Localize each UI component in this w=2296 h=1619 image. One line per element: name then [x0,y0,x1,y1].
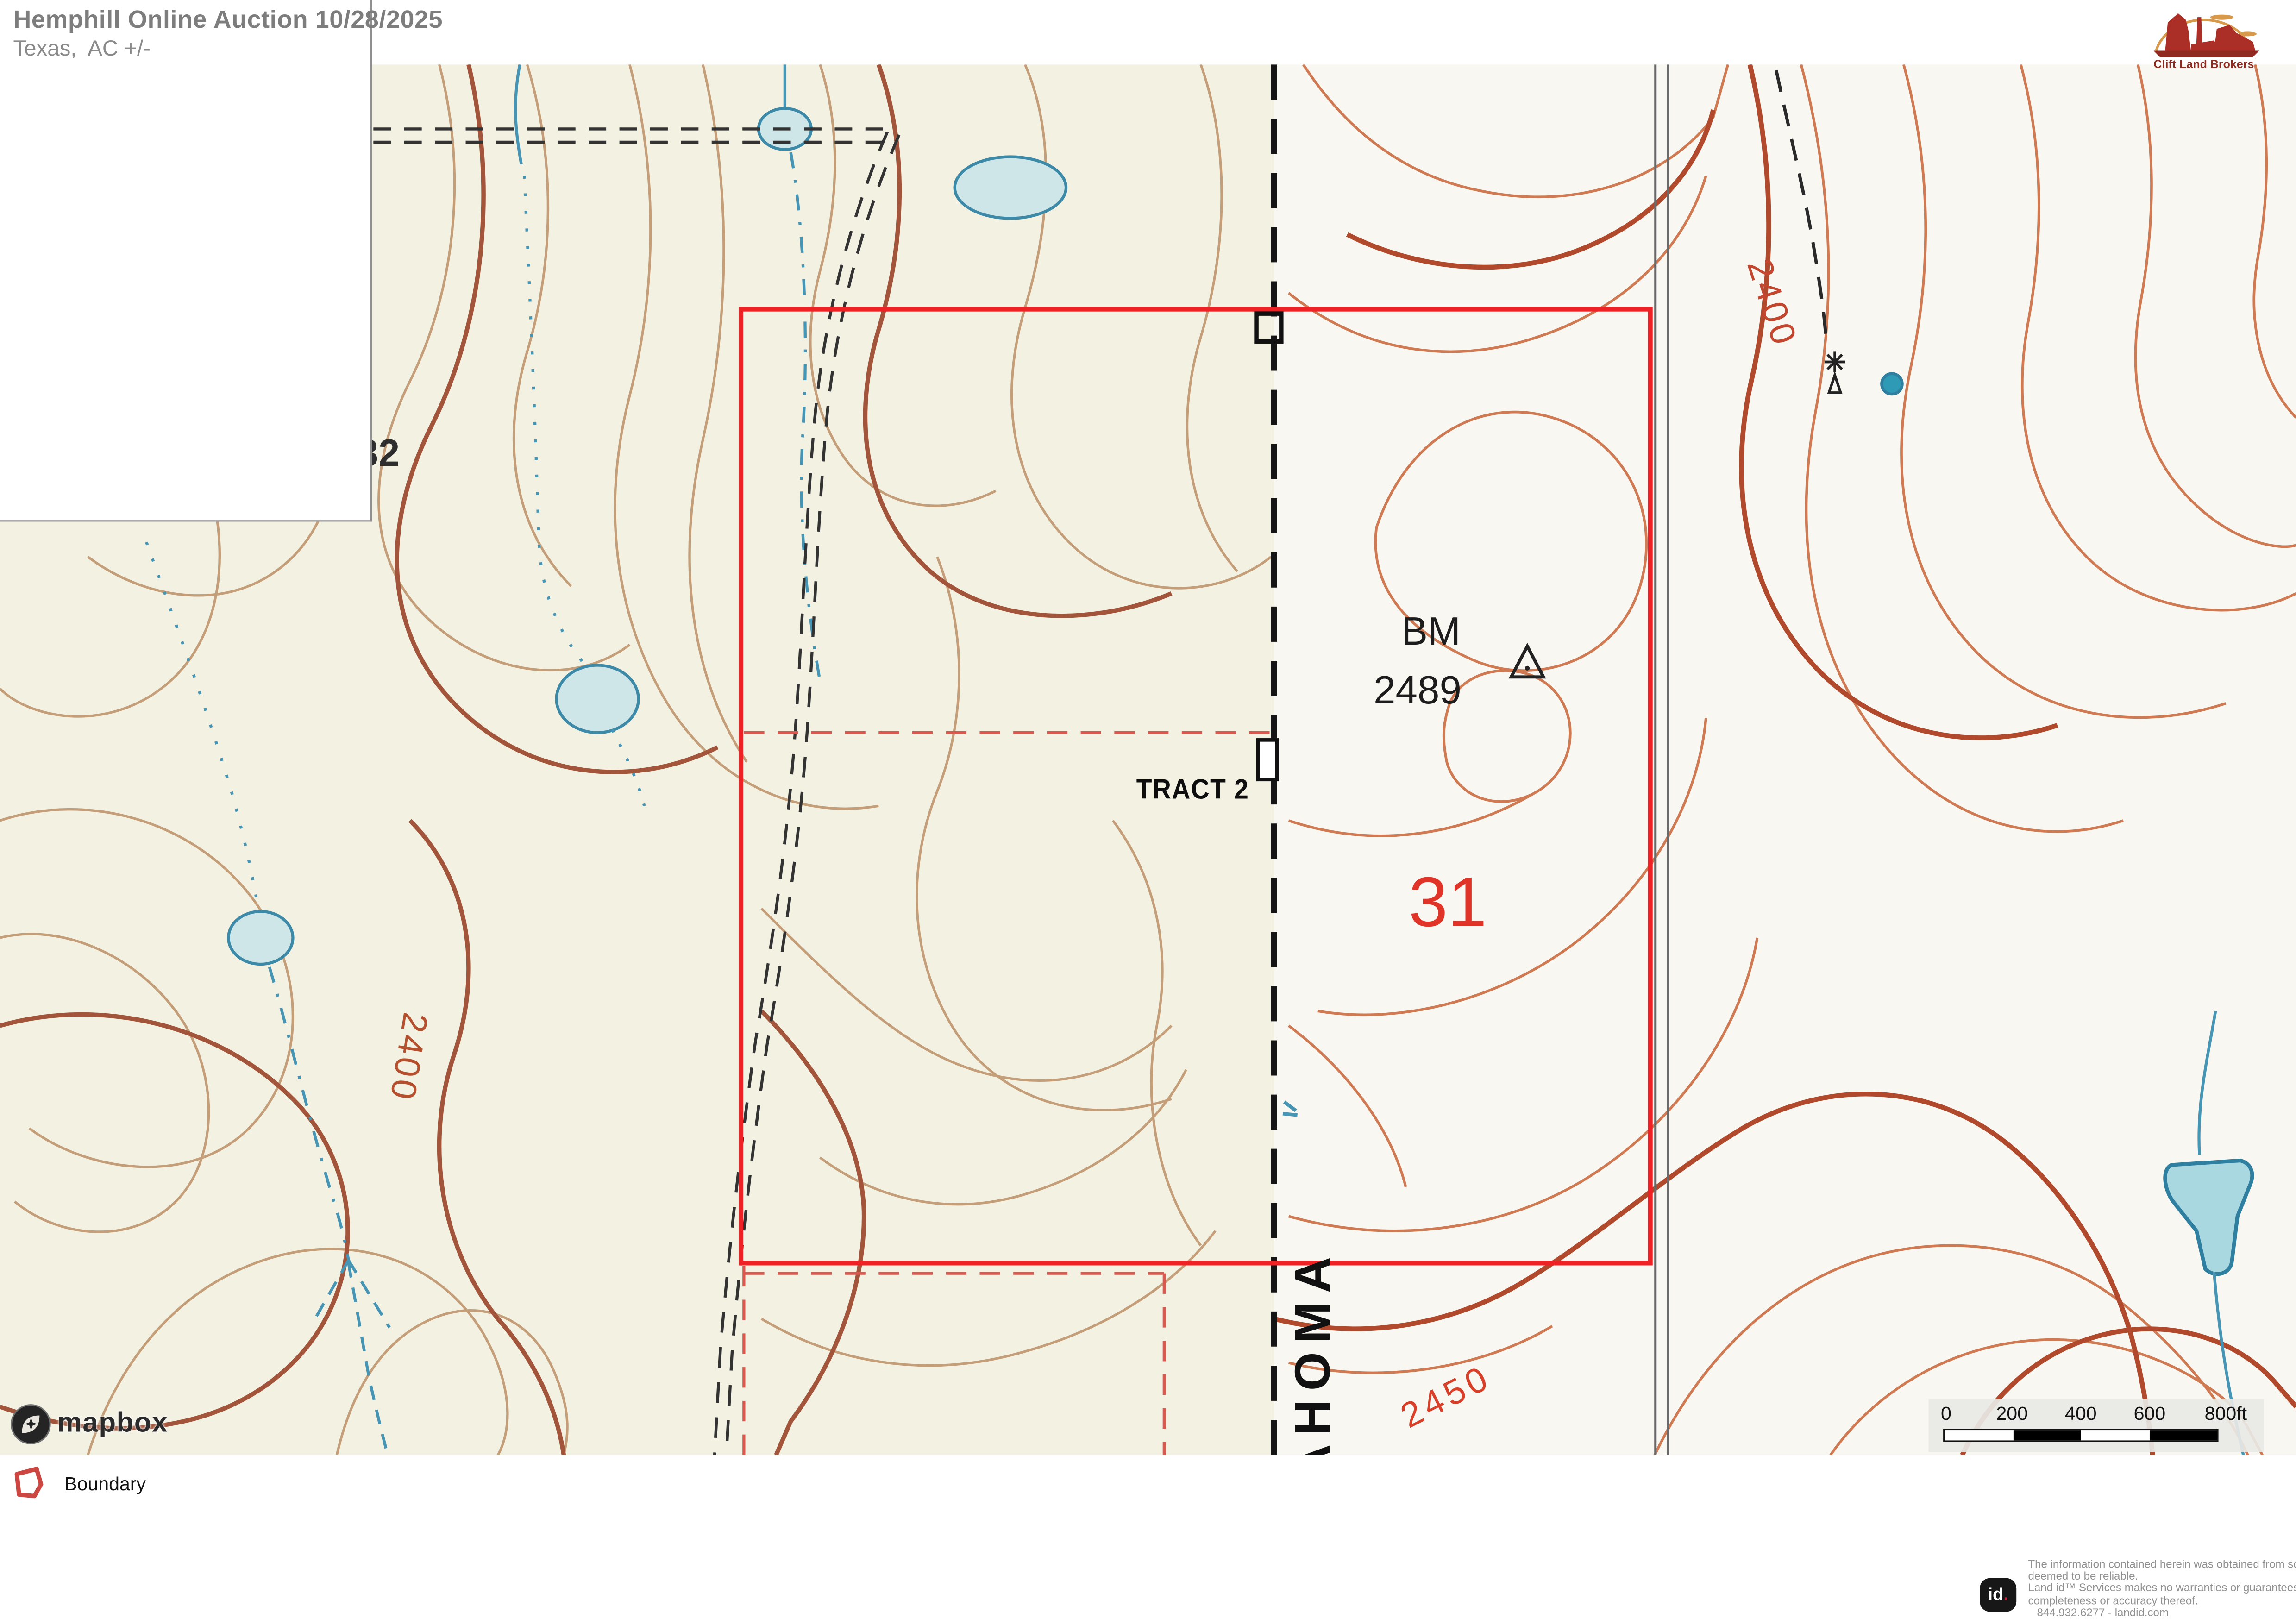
tract-label: TRACT 2 [1136,774,1249,805]
mapbox-wordmark: mapbox [57,1408,168,1441]
section-number-right: 31 [1409,863,1487,941]
disclaimer-text: The information contained herein was obt… [2028,1559,2288,1619]
disclaimer-line: Land id™ Services makes no warranties or… [2028,1583,2288,1595]
disclaimer-line: completeness or accuracy thereof. [2028,1595,2288,1607]
boundary-polygon-icon [12,1465,44,1500]
legend-boundary-label: Boundary [64,1472,146,1493]
legend-boundary: Boundary [12,1465,146,1500]
scale-tick-600: 600 [2134,1402,2166,1424]
disclaimer-block: id. The information contained herein was… [1980,1559,2287,1619]
scale-tick-400: 400 [2065,1402,2097,1424]
benchmark-elevation: 2489 [1374,668,1462,712]
logo-cloud [2210,15,2233,20]
broker-logo-text: Clift Land Brokers [2153,58,2254,70]
pond-hatched-left-2 [228,911,293,964]
page-subtitle: Texas, AC +/- [13,37,151,62]
disclaimer-line: 844.932.6277 - landid.com [2028,1607,2288,1619]
landid-logo-dot: . [2003,1584,2008,1604]
mapbox-logo[interactable]: mapbox [10,1401,168,1448]
marker-white-rect [1258,740,1277,779]
landid-logo-text: id [1988,1584,2004,1604]
benchmark-label: BM [1401,609,1461,653]
scale-tick-0: 0 [1941,1402,1951,1424]
landid-logo: id. [1980,1578,2016,1612]
page: 32 TRACT 2 BM 2489 31 2400 2400 2450 OKL… [0,0,2296,1616]
scale-tick-200: 200 [1996,1402,2028,1424]
logo-ground [2153,51,2259,57]
info-box: Hemphill Online Auction 10/28/2025 Texas… [0,0,372,521]
page-title: Hemphill Online Auction 10/28/2025 [13,6,443,35]
scale-track [1943,1429,2218,1442]
state-name-label: OKLAHOMA [1285,1248,1340,1612]
scale-tick-800: 800ft [2205,1402,2247,1424]
pond-small-right-top [1882,374,1902,394]
map-bg-oklahoma [1274,64,2296,1455]
broker-logo: Clift Land Brokers [2139,1,2268,70]
scale-bar: 0 200 400 600 800ft [1928,1399,2264,1452]
mapbox-icon [10,1404,51,1445]
pond-hatched-junction [955,157,1066,219]
pond-hatched-left-1 [557,665,639,733]
